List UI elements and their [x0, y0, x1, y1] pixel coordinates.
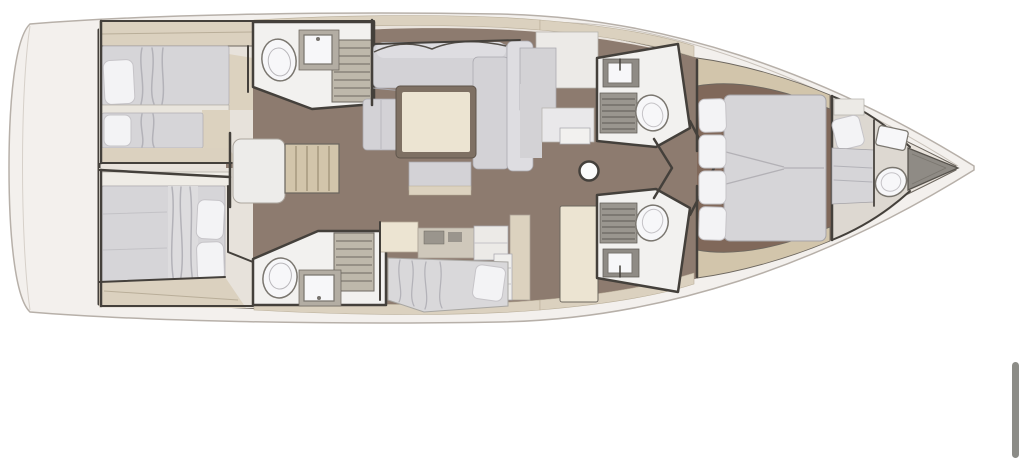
mast: [580, 162, 599, 181]
pillow: [103, 59, 135, 105]
sofa-chaise-seat: [473, 57, 509, 169]
pillow: [699, 135, 726, 168]
nav-column: [520, 84, 542, 158]
pillow: [472, 264, 506, 302]
shelf-board: [834, 99, 864, 115]
scrollbar-thumb[interactable]: [1012, 362, 1019, 458]
forward-head-port: [597, 44, 690, 147]
coffee-bench-lip: [409, 186, 471, 195]
pillow: [104, 115, 131, 146]
companionway-stairs: [285, 144, 339, 193]
pillow: [196, 199, 225, 239]
counter: [380, 222, 418, 252]
yacht-floor-plan: [0, 0, 1024, 467]
berth-foot-panel: [202, 110, 230, 148]
pillow: [699, 171, 726, 204]
floor-plan-canvas: [0, 0, 1024, 467]
faucet: [317, 296, 321, 300]
cabin-shelf: [101, 148, 238, 163]
pillow: [196, 242, 224, 282]
pillow: [698, 207, 726, 241]
engine-box-landing: [233, 139, 285, 203]
stove: [448, 232, 462, 242]
crew-berth: [832, 148, 874, 204]
forward-head-starboard: [597, 189, 690, 292]
tall-cabinet: [510, 215, 530, 300]
faucet: [316, 37, 320, 41]
galley-peninsula: [560, 206, 598, 302]
salon-table-top: [402, 92, 470, 152]
nav-seat: [560, 128, 590, 144]
pillow: [698, 99, 726, 133]
galley-sink: [424, 231, 444, 244]
